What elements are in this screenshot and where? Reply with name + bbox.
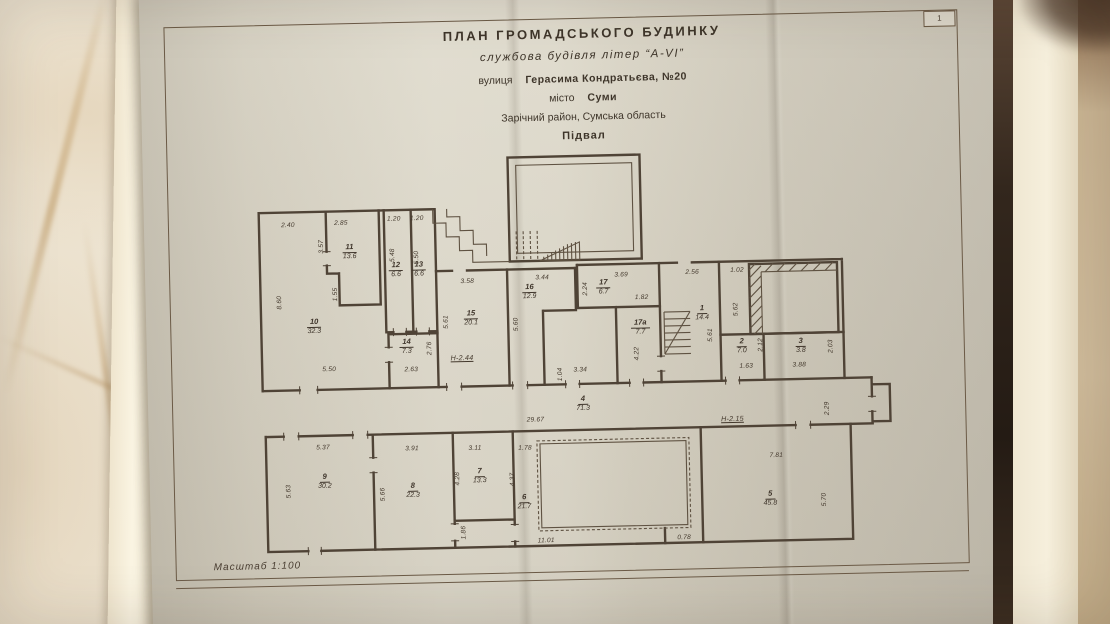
height-mark: Н-2.15 [721, 414, 744, 424]
dimension: 5.48 [389, 248, 396, 262]
dimension: 5.50 [413, 251, 420, 265]
room-area: 32.3 [307, 327, 321, 336]
room-number: 9 [319, 473, 329, 483]
dimension: 2.24 [582, 282, 589, 296]
dimension: 3.69 [614, 271, 628, 278]
dimension: 3.57 [318, 240, 325, 254]
room-area: 7.7 [635, 328, 645, 337]
room-label: 33.8 [795, 337, 806, 355]
dimension: 4.37 [509, 473, 516, 487]
dimension: 1.04 [557, 367, 564, 381]
dimension: 5.66 [379, 488, 386, 502]
room-area: 6.6 [391, 270, 401, 279]
dimension: 2.63 [404, 366, 418, 373]
marble-vein [1, 0, 110, 395]
room-label: 1612.9 [522, 283, 537, 301]
room-number: 17 [596, 278, 611, 288]
room-area: 3.8 [796, 346, 806, 355]
room-area: 45.8 [763, 499, 777, 508]
floorplan: 1032.3 1113.6 126.6 136.6 147.3 1520.1 1… [139, 0, 1016, 624]
dimension: 0.78 [677, 534, 691, 541]
dimension: 5.63 [285, 485, 292, 499]
room-label: 930.2 [318, 473, 332, 491]
room-label: 17а7.7 [631, 318, 650, 336]
dimension: 1.02 [730, 267, 744, 274]
dimension: 2.56 [685, 269, 699, 276]
dimension: 1.55 [332, 288, 339, 302]
right-sheet-edge [1013, 0, 1081, 624]
room-area: 6.7 [599, 288, 609, 297]
room-number: 3 [795, 337, 805, 347]
dimension: 8.60 [276, 296, 283, 310]
room-area: 12.9 [523, 292, 537, 301]
room-number: 16 [522, 283, 537, 293]
photo-scene: 1 ПЛАН ГРОМАДСЬКОГО БУДИНКУ службова буд… [0, 0, 1110, 624]
room-area: 13.6 [343, 252, 357, 261]
room-number: 7 [474, 467, 484, 477]
marble-right [1078, 0, 1110, 624]
room-label: 1520.1 [464, 309, 479, 327]
room-area: 20.1 [464, 319, 478, 328]
floorplan-drawing [139, 0, 1016, 624]
room-number: 11 [342, 243, 356, 253]
dimension: 3.34 [573, 366, 587, 373]
room-number: 8 [408, 482, 418, 492]
room-number: 10 [307, 318, 322, 328]
room-area: 14.4 [695, 314, 709, 323]
room-label: 114.4 [695, 304, 709, 322]
dimension: 3.91 [405, 445, 419, 452]
room-number: 5 [765, 490, 775, 500]
dimension: 1.20 [410, 215, 424, 222]
dimension: 11.01 [538, 537, 555, 544]
dimension: 2.85 [334, 220, 348, 227]
room-label: 27.0 [736, 337, 747, 355]
dimension: 5.61 [443, 315, 450, 329]
dimension: 3.11 [468, 445, 481, 452]
dimension: 1.63 [739, 363, 753, 370]
dimension: 4.22 [633, 347, 640, 361]
marble-dark-patch [1020, 0, 1110, 52]
dimension: 1.78 [518, 445, 532, 452]
room-number: 1 [697, 304, 707, 314]
dimension: 1.20 [387, 215, 401, 222]
floor-plan-sheet: 1 ПЛАН ГРОМАДСЬКОГО БУДИНКУ службова буд… [139, 0, 1016, 624]
room-label: 822.3 [406, 482, 420, 500]
room-area: 7.0 [737, 347, 747, 356]
room-area: 30.2 [318, 482, 332, 491]
dimension: 2.03 [827, 339, 834, 353]
height-mark: Н-2.44 [450, 353, 473, 363]
room-number: 2 [736, 337, 746, 347]
room-number: 14 [399, 338, 414, 348]
room-area: 6.6 [414, 270, 424, 279]
dimension: 5.50 [322, 366, 336, 373]
room-label: 621.7 [517, 493, 531, 511]
room-area: 7.3 [402, 347, 412, 356]
dimension: 5.60 [513, 317, 520, 331]
room-label: 471.3 [576, 395, 590, 413]
dimension: 1.86 [460, 526, 467, 540]
dimension: 29.67 [527, 416, 545, 423]
room-number: 15 [464, 309, 479, 319]
room-label: 126.6 [389, 261, 404, 279]
room-area: 71.3 [576, 404, 590, 413]
room-label: 1032.3 [307, 318, 322, 336]
dimension: 3.88 [792, 361, 806, 368]
room-number: 12 [389, 261, 404, 271]
room-label: 545.8 [763, 490, 777, 508]
dimension: 3.58 [460, 278, 474, 285]
room-area: 21.7 [517, 503, 531, 512]
dimension: 7.81 [769, 452, 783, 459]
dimension: 5.70 [821, 493, 828, 507]
dimension: 2.12 [757, 338, 764, 352]
dimension: 4.28 [454, 472, 461, 486]
room-number: 4 [578, 395, 588, 405]
dimension: 2.40 [281, 222, 295, 229]
dimension: 2.76 [426, 341, 433, 355]
room-number: 6 [519, 493, 529, 503]
room-label: 1113.6 [342, 243, 356, 261]
dimension: 5.62 [732, 302, 739, 316]
room-label: 176.7 [596, 278, 611, 296]
room-label: 147.3 [399, 338, 414, 356]
dimension: 2.29 [824, 401, 831, 415]
room-area: 13.3 [473, 477, 487, 486]
room-area: 22.3 [406, 491, 420, 500]
dimension: 1.82 [635, 294, 649, 301]
dimension: 3.44 [535, 274, 549, 281]
room-label: 713.3 [473, 467, 487, 485]
dimension: 5.61 [707, 328, 714, 342]
dimension: 5.37 [316, 444, 330, 451]
room-number: 17а [631, 318, 650, 328]
